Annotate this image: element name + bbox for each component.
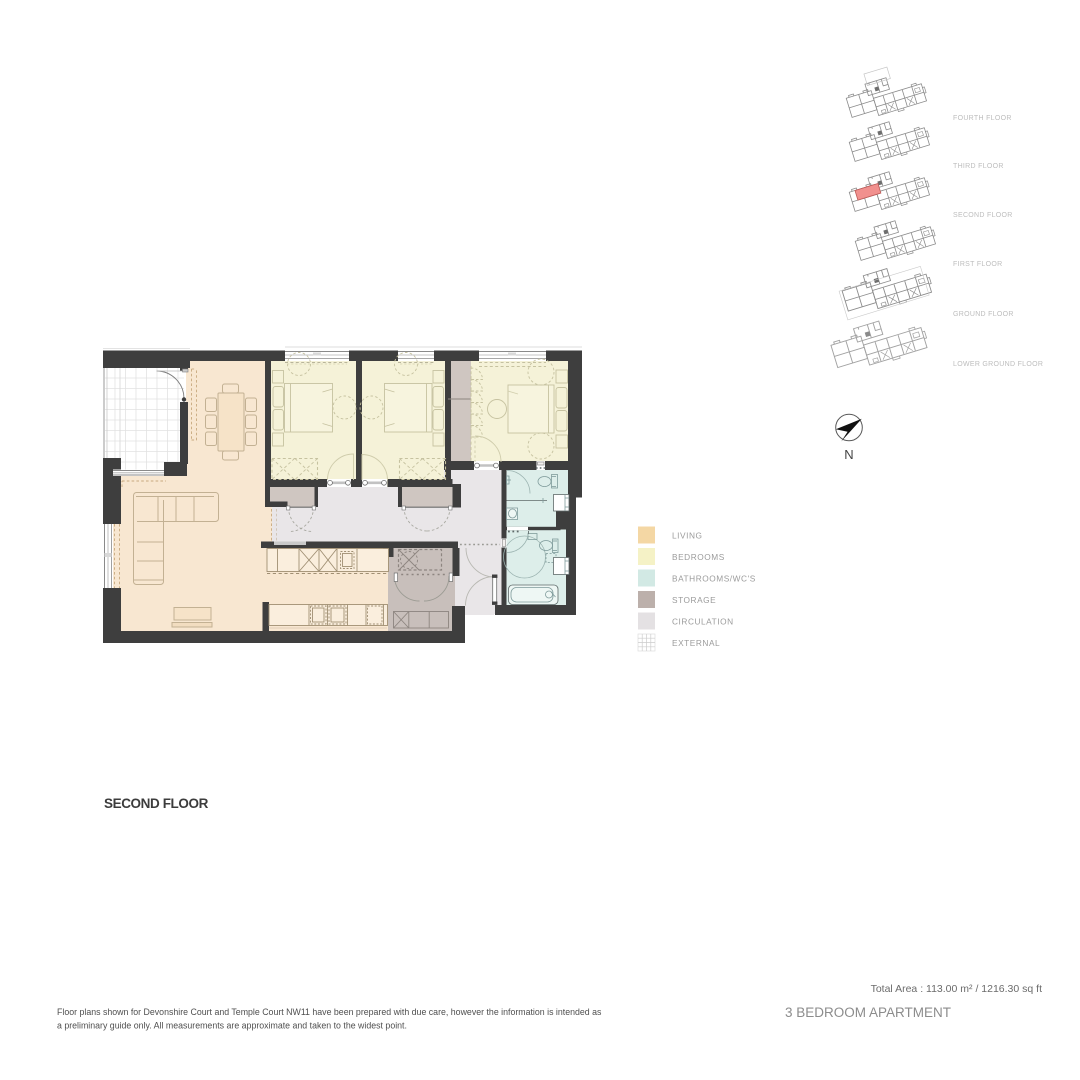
svg-text:3 BEDROOM APARTMENT: 3 BEDROOM APARTMENT: [785, 1005, 951, 1020]
svg-text:N: N: [844, 447, 853, 462]
svg-text:CIRCULATION: CIRCULATION: [672, 617, 734, 627]
svg-text:FOURTH FLOOR: FOURTH FLOOR: [953, 115, 1012, 122]
svg-text:a preliminary guide only. All: a preliminary guide only. All measuremen…: [57, 1021, 407, 1031]
svg-text:EXTERNAL: EXTERNAL: [672, 638, 720, 648]
svg-text:FIRST FLOOR: FIRST FLOOR: [953, 261, 1002, 268]
svg-text:BEDROOMS: BEDROOMS: [672, 552, 725, 562]
svg-text:SECOND FLOOR: SECOND FLOOR: [953, 212, 1013, 219]
svg-text:STORAGE: STORAGE: [672, 595, 716, 605]
svg-text:GROUND FLOOR: GROUND FLOOR: [953, 311, 1014, 318]
svg-text:THIRD FLOOR: THIRD FLOOR: [953, 163, 1004, 170]
svg-text:Total Area : 113.00 m² / 1216.: Total Area : 113.00 m² / 1216.30 sq ft: [871, 983, 1042, 995]
svg-text:LOWER GROUND FLOOR: LOWER GROUND FLOOR: [953, 361, 1043, 368]
svg-text:SECOND FLOOR: SECOND FLOOR: [104, 796, 209, 811]
svg-text:LIVING: LIVING: [672, 531, 703, 541]
svg-text:BATHROOMS/WC'S: BATHROOMS/WC'S: [672, 574, 756, 584]
svg-text:Floor plans shown for Devonshi: Floor plans shown for Devonshire Court a…: [57, 1007, 602, 1017]
